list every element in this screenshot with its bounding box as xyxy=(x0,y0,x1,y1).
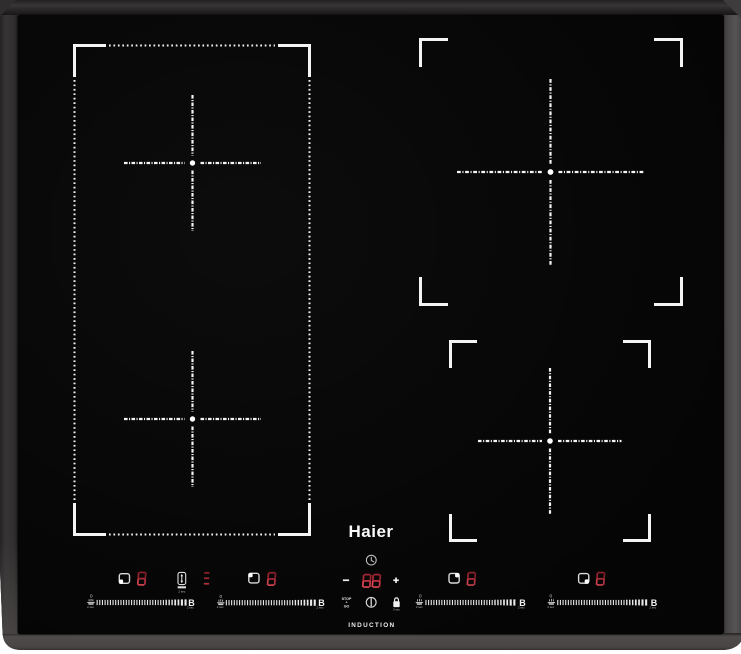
svg-text:2 sec: 2 sec xyxy=(178,589,185,593)
svg-text:2 sec: 2 sec xyxy=(547,605,554,609)
svg-text:INDUCTION: INDUCTION xyxy=(348,622,395,629)
svg-text:2 sec: 2 sec xyxy=(518,605,525,609)
svg-text:0: 0 xyxy=(90,594,93,599)
svg-text:0: 0 xyxy=(220,594,223,599)
svg-text:2 sec: 2 sec xyxy=(187,605,194,609)
svg-text:GO: GO xyxy=(344,604,350,608)
svg-text:Haier: Haier xyxy=(348,522,393,541)
svg-text:2 sec: 2 sec xyxy=(87,605,94,609)
svg-text:3 sec: 3 sec xyxy=(393,608,400,612)
svg-text:2 sec: 2 sec xyxy=(317,605,324,609)
svg-text:0: 0 xyxy=(419,593,422,598)
svg-text:0: 0 xyxy=(550,593,553,598)
svg-text:2 sec: 2 sec xyxy=(649,605,656,609)
svg-text:2 sec: 2 sec xyxy=(416,605,423,609)
svg-text:2 sec: 2 sec xyxy=(217,605,224,609)
